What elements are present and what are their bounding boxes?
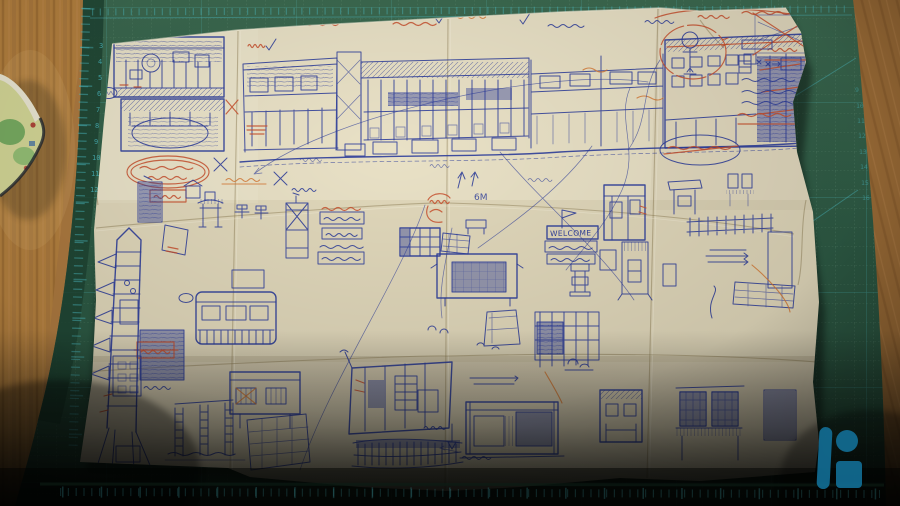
photo-of-sketch-on-cutting-mat: 3 4 5 6 7 8 9 10 11 12 9 10 11 12 13 14 …	[0, 0, 900, 506]
logo-circle-shape	[836, 430, 858, 452]
logo-square-shape	[836, 461, 862, 488]
photo-lighting	[0, 0, 900, 506]
photo-canvas: 3 4 5 6 7 8 9 10 11 12 9 10 11 12 13 14 …	[0, 0, 900, 506]
